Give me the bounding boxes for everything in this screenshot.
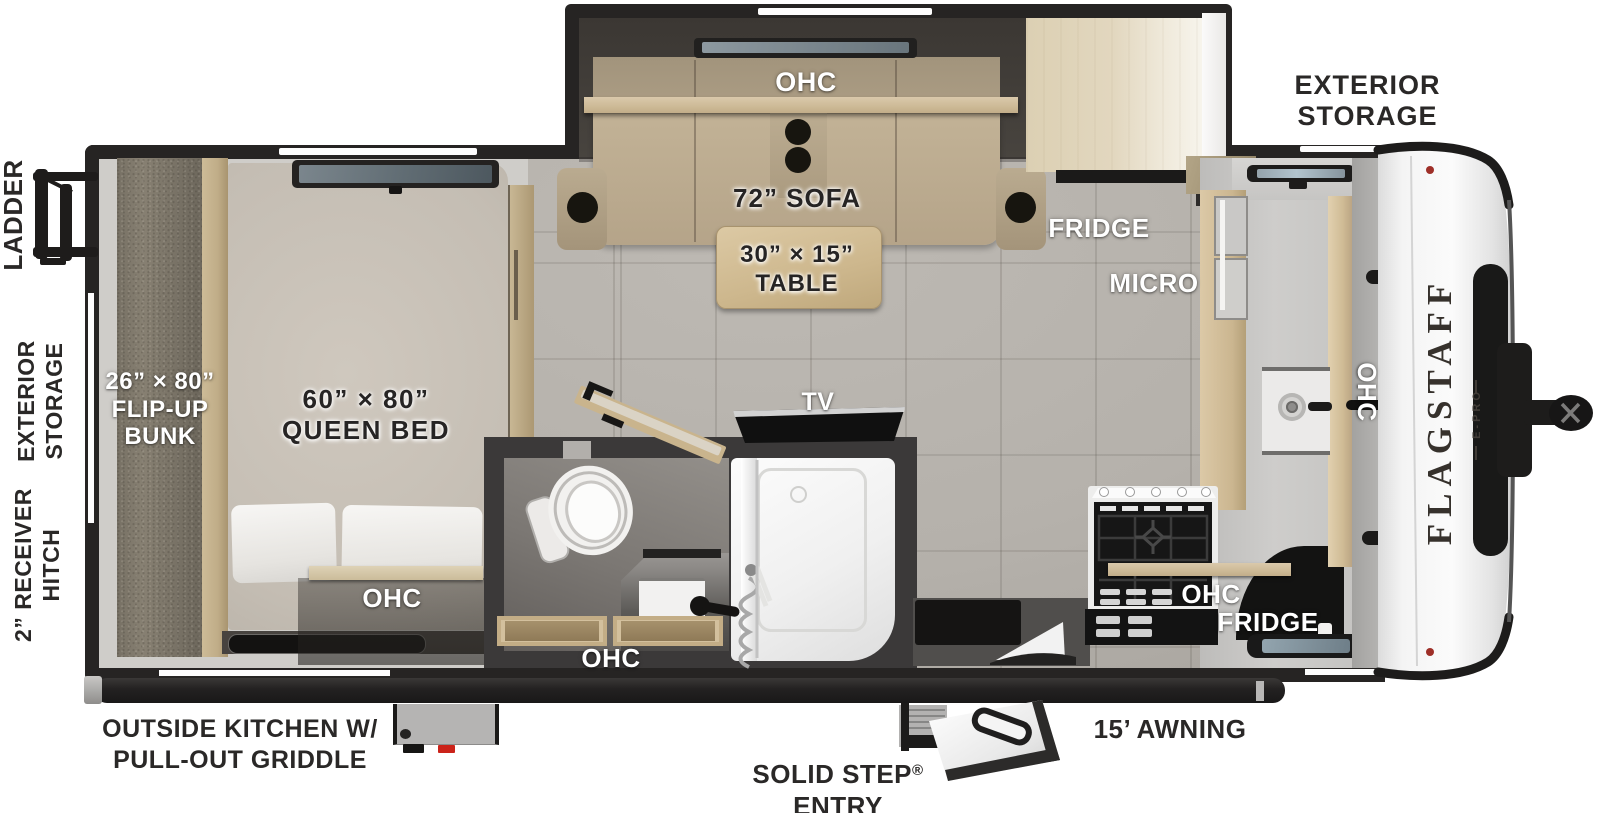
svg-text:FLAGSTAFF: FLAGSTAFF	[1420, 277, 1459, 545]
svg-text:E-PRO: E-PRO	[1471, 389, 1483, 439]
